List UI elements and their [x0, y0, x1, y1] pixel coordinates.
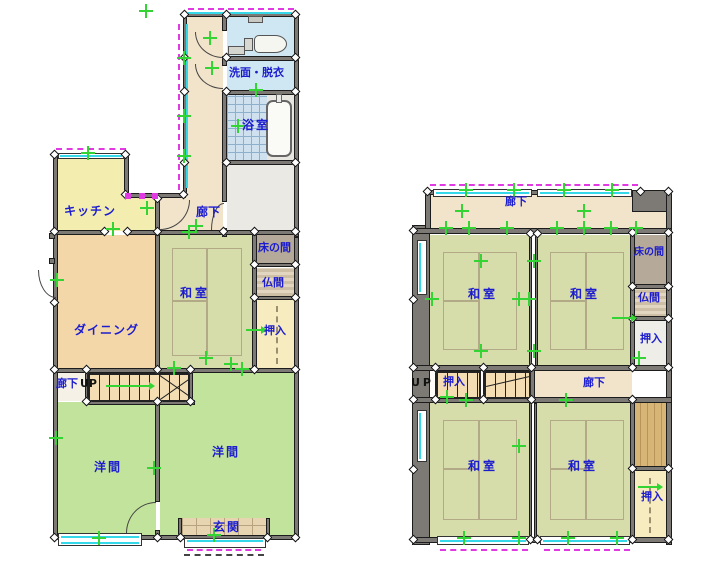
room-label-kitchen: キッチン [64, 205, 116, 217]
window [61, 536, 139, 538]
room-label-oshiire-2f-right: 押入 [640, 333, 662, 344]
room-label-oshiire-se: 押入 [641, 491, 663, 502]
wall [155, 400, 160, 502]
window [58, 533, 142, 546]
wall [425, 190, 431, 232]
room-label-oshiire-stairs: 押入 [443, 376, 465, 387]
window [188, 12, 292, 14]
floorplan-canvas: 洗面・脱衣 浴室 キッチン 廊下 ダイニング 和室 床の間 仏間 押入 廊下 U… [0, 0, 718, 587]
window [436, 192, 529, 194]
kitchen-extension [126, 198, 157, 231]
entrance-sliding-door-line [187, 549, 261, 551]
wood-deck-2f [633, 403, 667, 467]
sliding-door-dot-icon [152, 193, 158, 199]
room-label-hallway-top-2f: 廊下 [505, 196, 527, 207]
eave-dashed-line [544, 549, 630, 551]
window [61, 542, 139, 544]
tatami-line [172, 300, 206, 302]
toilet-bowl-icon [254, 35, 287, 53]
room-label-tokonoma-1f: 床の間 [258, 242, 291, 253]
room-label-stair-hallway: 廊下 [56, 378, 78, 389]
cabinet-icon [228, 46, 245, 55]
dining-room [58, 235, 156, 369]
window [60, 155, 122, 157]
sliding-door-dot-icon [125, 193, 131, 199]
room-label-hallway: 廊下 [196, 206, 220, 218]
window [419, 413, 421, 459]
wall [529, 403, 532, 538]
room-label-butsuma-1f: 仏間 [262, 277, 284, 288]
sliding-door-dot-icon [139, 193, 145, 199]
tatami-line [478, 252, 480, 350]
eave-dashed-line [178, 24, 180, 190]
wall [535, 234, 538, 368]
room-label-washitsu-nw: 和室 [468, 288, 498, 300]
window [540, 192, 629, 194]
toilet-vent-icon [248, 16, 263, 23]
eave-dashed-line [440, 549, 528, 551]
leader-arrow-icon [612, 317, 632, 319]
room-label-dining: ダイニング [74, 324, 139, 336]
room-label-washitsu-ne: 和室 [570, 288, 600, 300]
entrance-sliding-door [187, 540, 263, 542]
cad-handle-icon [139, 4, 153, 18]
wall [294, 13, 299, 237]
stairs-up-label-2f: UP [411, 377, 434, 388]
room-label-tokonoma-2f: 床の間 [634, 248, 664, 258]
utility-room [227, 165, 295, 231]
eave-dashed-line [188, 8, 294, 10]
tatami-line [585, 252, 587, 350]
room-label-washitsu-se: 和室 [568, 460, 598, 472]
kitchen [58, 158, 126, 231]
wall [294, 237, 299, 540]
room-label-entrance: 玄関 [213, 521, 241, 533]
tokonoma-2f [633, 235, 667, 285]
wall [222, 90, 299, 95]
window [543, 540, 627, 542]
leader-arrow-icon [638, 486, 658, 488]
room-label-hallway-mid-2f: 廊下 [583, 377, 605, 388]
room-label-western-left: 洋間 [94, 461, 122, 473]
wall [222, 56, 299, 61]
wall [222, 90, 227, 202]
leader-arrow-icon [246, 329, 262, 331]
wall [53, 230, 105, 235]
window [440, 540, 526, 542]
wall [222, 160, 299, 165]
wall [53, 153, 58, 540]
room-label-oshiire-1f: 押入 [264, 325, 286, 336]
stairs-up-label-1f: UP [80, 378, 97, 389]
tatami-line [206, 248, 208, 356]
room-label-western-right: 洋間 [212, 446, 240, 458]
leader-arrow-icon [106, 385, 150, 387]
eave-dashed-line [430, 184, 533, 186]
eave-dashed-line [56, 148, 126, 150]
room-label-washitsu-1f: 和室 [180, 287, 210, 299]
wall [534, 403, 537, 538]
wall [155, 235, 160, 375]
toilet-tank-icon [244, 38, 253, 51]
bath-tap-icon [276, 94, 282, 103]
entrance-step-dashed-line [184, 554, 264, 556]
wall [529, 234, 532, 368]
window [419, 243, 421, 292]
wall-pillar [49, 258, 55, 264]
room-label-butsuma-2f: 仏間 [638, 292, 660, 303]
room-label-washitsu-sw: 和室 [468, 460, 498, 472]
eave-dashed-line [536, 184, 638, 186]
room-label-washroom: 洗面・脱衣 [229, 67, 284, 78]
room-label-bath: 浴室 [242, 119, 270, 131]
